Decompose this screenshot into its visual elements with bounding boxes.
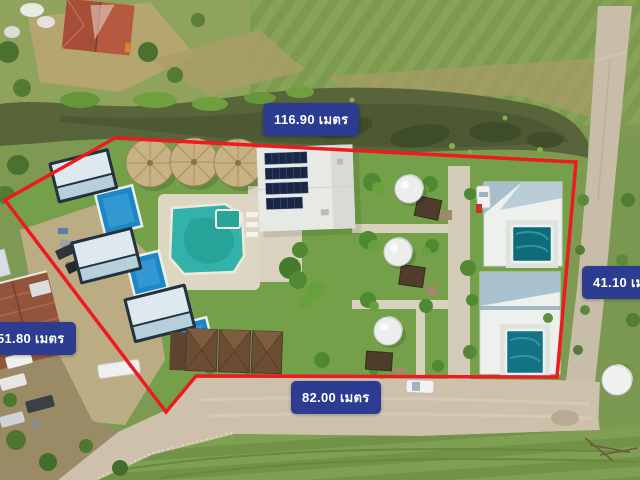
car-on-road — [406, 380, 434, 394]
storage-dome — [602, 365, 632, 395]
measurement-label-left: 51.80 เมตร — [0, 322, 76, 355]
measurement-label-bottom: 82.00 เมตร — [291, 381, 381, 414]
measurement-label-top: 116.90 เมตร — [263, 103, 359, 136]
thatched-pavilions — [169, 328, 282, 374]
measurement-label-right: 41.10 เมตร — [582, 266, 640, 299]
neighbor-house — [62, 0, 136, 56]
solar-panel-building — [256, 144, 361, 238]
aerial-photo: 116.90 เมตร 41.10 เมตร 51.80 เมตร 82.00 … — [0, 0, 640, 480]
